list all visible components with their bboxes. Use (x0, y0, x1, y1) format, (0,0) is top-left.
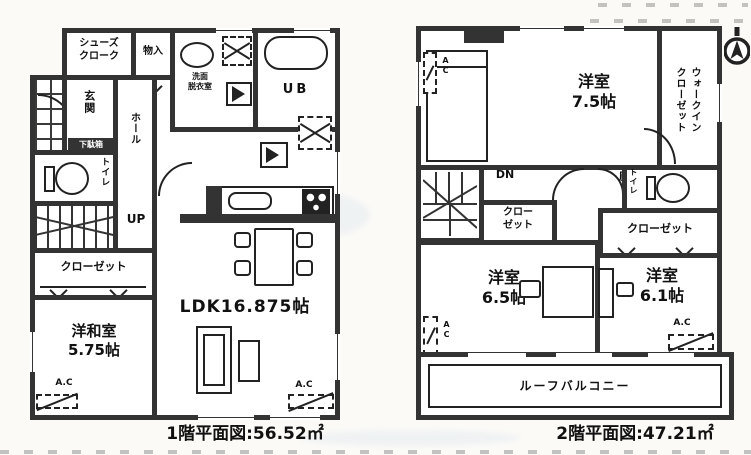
stairs-up-icon (30, 201, 118, 253)
chair-icon (234, 232, 251, 248)
roof-balcony-label: ルーフバルコニー (428, 379, 722, 394)
bedroom-75-label: 洋室 7.5帖 (536, 72, 652, 112)
wall-stub (464, 31, 504, 43)
walk-in-closet-label: ウォークイン クローゼット (672, 42, 702, 158)
chair-icon (519, 280, 541, 298)
door-symbol-icon (226, 82, 252, 106)
storage-label: 物入 (133, 46, 173, 59)
ac-box-icon (423, 316, 438, 356)
stove-icon (302, 189, 330, 214)
stairs-down-icon (423, 172, 477, 236)
sink-icon (180, 42, 214, 68)
room-closet-1f (30, 248, 157, 300)
floor2-caption: 2階平面図:47.21㎡ (520, 424, 750, 445)
cabinet-icon (260, 142, 288, 168)
toilet-icon (55, 162, 89, 195)
window-marker (335, 152, 340, 194)
window-marker (717, 84, 722, 122)
stairs-up-label: UP (119, 212, 153, 227)
cropped-text-artifact (590, 19, 748, 23)
chair-icon (296, 232, 313, 248)
cropped-text-artifact (598, 3, 748, 7)
toilet-tank-icon (646, 176, 656, 200)
japanese-room-label: 洋和室 5.75帖 (38, 322, 150, 360)
washer-box-icon (222, 36, 252, 66)
ldk-label: LDK16.875帖 (152, 297, 338, 318)
entrance-label: 玄関 (82, 90, 96, 114)
ac-box-icon (668, 334, 714, 350)
bedroom-61-label: 洋室 6.1帖 (616, 266, 708, 306)
window-marker (335, 334, 340, 380)
washroom-label: 洗面 脱衣室 (174, 72, 226, 92)
floorplan-canvas: シューズ クローク 物入 洗面 脱衣室 UB 玄関 下駄箱 ホール トイレ UP… (0, 0, 751, 455)
toilet-1f-label: トイレ (98, 157, 109, 187)
desk-icon (542, 266, 594, 318)
window-marker (584, 26, 624, 31)
window-marker (294, 28, 330, 33)
closet-small-label: クロー ゼット (483, 207, 553, 232)
window-marker (416, 62, 421, 106)
balcony-door-opening (468, 353, 526, 361)
toilet-2f-label: トイレ (628, 168, 638, 195)
kitchen-sink-icon (228, 192, 272, 210)
ac-label: A.C (46, 378, 82, 389)
counter-front-wall (180, 214, 336, 223)
page-edge-artifact (0, 450, 751, 454)
ac-label-vertical: AC (441, 320, 451, 340)
window-marker (198, 415, 254, 420)
hall-label: ホール (127, 112, 140, 145)
toilet-icon (656, 173, 690, 203)
north-arrow-icon (724, 27, 750, 67)
unit-bath-label: UB (255, 82, 337, 98)
stairs-down-label: DN (489, 168, 521, 182)
window-marker (216, 28, 252, 33)
ac-box-icon (288, 394, 334, 409)
ac-label-vertical: AC (440, 56, 450, 76)
toilet-tank-icon (44, 166, 55, 192)
ac-label: A.C (286, 380, 322, 391)
closet-wide-label: クローゼット (602, 222, 718, 236)
closet-1f-label: クローゼット (34, 260, 153, 274)
shoe-box-label: 下駄箱 (68, 140, 114, 150)
ac-label: A.C (662, 318, 702, 329)
dining-table-icon (254, 228, 294, 286)
sofa-seat (203, 334, 225, 386)
kitchen-end-panel (206, 186, 222, 216)
ac-box-icon (36, 394, 78, 409)
chair-icon (234, 260, 251, 276)
fridge-box-icon (298, 116, 332, 150)
ac-box-icon (423, 52, 437, 94)
window-marker (30, 332, 35, 372)
side-table-icon (238, 340, 260, 382)
window-marker (270, 415, 320, 420)
floor1-caption: 1階平面図:56.52㎡ (110, 424, 380, 445)
shoes-closet-label: シューズ クローク (64, 38, 134, 63)
window-marker (520, 26, 564, 31)
balcony-door-opening (648, 353, 694, 361)
balcony-door-opening (556, 353, 612, 361)
bathtub-icon (264, 36, 328, 70)
desk-icon (598, 268, 614, 318)
chair-icon (296, 260, 313, 276)
